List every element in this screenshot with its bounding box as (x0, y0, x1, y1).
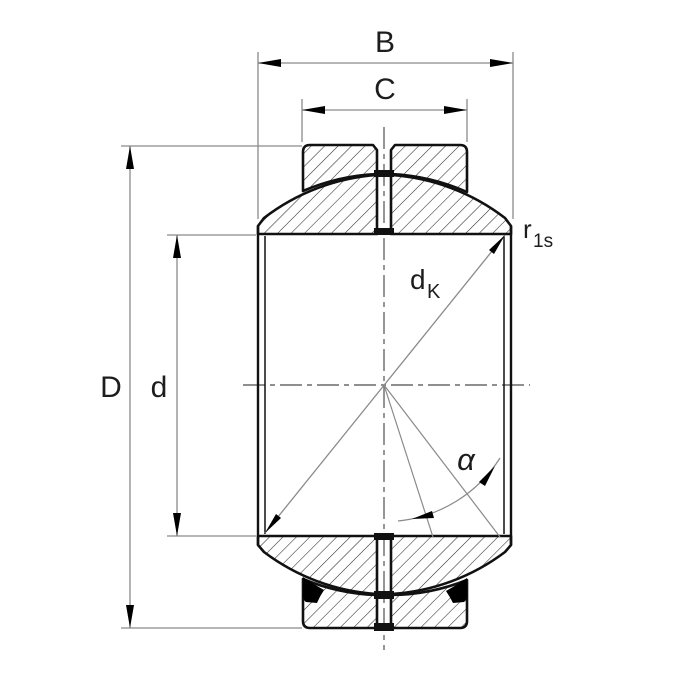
slot-bar-sphere-bottom (374, 591, 394, 599)
alpha-label: α (457, 442, 476, 477)
d-bore-label: d (151, 371, 168, 404)
alpha-ray-shallow (384, 385, 500, 537)
alpha-arc (398, 458, 500, 521)
b-arrow-left (258, 59, 281, 67)
bearing-drawing-page: B C D d (0, 0, 700, 700)
dk-label-sub: K (427, 281, 441, 303)
dimension-B: B (258, 26, 513, 219)
dimension-d: d (151, 235, 256, 536)
c-label: C (374, 73, 396, 106)
dk-arrow-upper (489, 235, 505, 254)
slot-bar-bore-top (374, 228, 394, 235)
d-outer-arrow-top (126, 146, 134, 169)
bearing-cross-section-drawing: B C D d (0, 0, 700, 700)
d-bore-arrow-bottom (173, 513, 181, 536)
c-arrow-left (302, 106, 325, 114)
dimension-dK: d K (265, 235, 505, 533)
dk-dimension-line (265, 235, 505, 533)
r1s-label-base: r (523, 214, 532, 244)
d-bore-arrow-top (173, 235, 181, 258)
dimension-alpha: α (384, 385, 500, 537)
slot-bar-bore-bottom (374, 533, 394, 540)
slot-bar-outer-bottom (374, 623, 394, 631)
alpha-arrow-upper (479, 466, 495, 486)
b-arrow-right (490, 59, 513, 67)
dk-label-base: d (410, 264, 426, 295)
d-outer-label: D (100, 371, 122, 404)
label-r1s: r 1s (523, 214, 553, 252)
alpha-arrow-lower (412, 511, 434, 519)
b-label: B (375, 26, 395, 59)
c-arrow-right (444, 106, 467, 114)
r1s-label-sub: 1s (533, 231, 553, 252)
d-outer-arrow-bottom (126, 605, 134, 628)
slot-bar-sphere-top (374, 170, 394, 177)
dk-arrow-lower (265, 514, 281, 533)
